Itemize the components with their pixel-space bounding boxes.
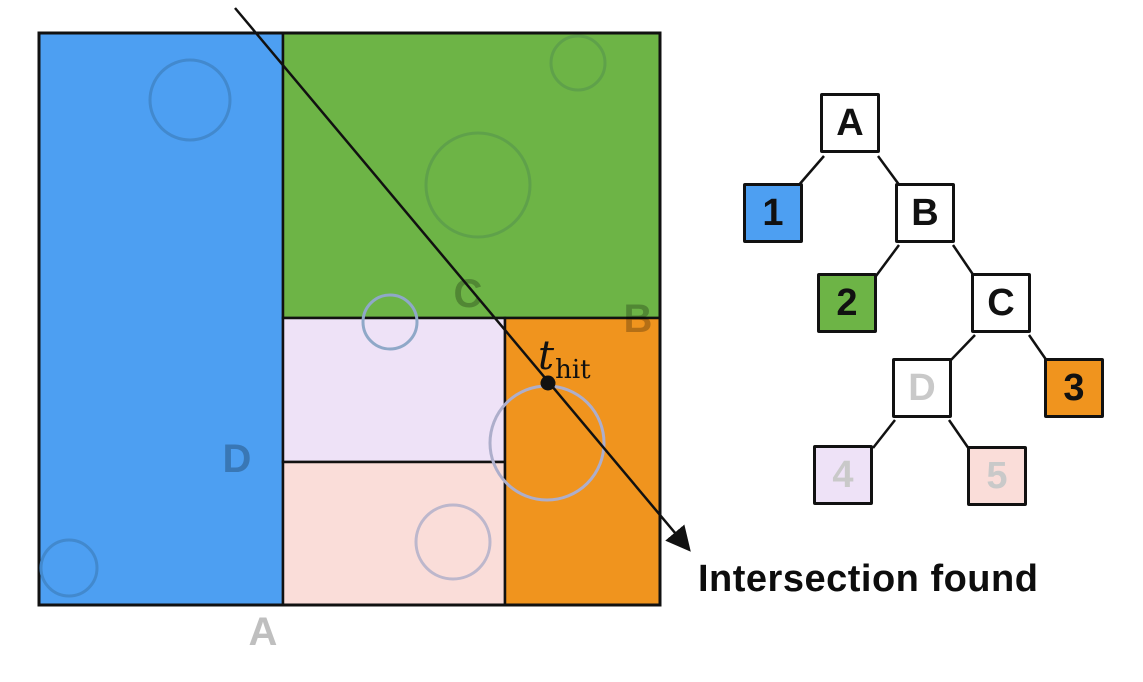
tree-node-D: D (892, 358, 952, 418)
region-label-c: C (454, 272, 483, 316)
edge-b-2 (876, 245, 899, 276)
t-hit-symbol: t (538, 333, 554, 379)
t-hit-subscript: hit (555, 355, 591, 385)
edge-b-c (953, 245, 974, 276)
region-label-b: B (624, 297, 653, 341)
edge-c-d (950, 335, 975, 361)
tree-node-2: 2 (817, 273, 877, 333)
tree-node-A: A (820, 93, 880, 153)
edge-d-4 (873, 420, 895, 448)
intersection-found-caption: Intersection found (698, 558, 1038, 601)
region-1-blue (39, 33, 283, 605)
tree-node-C: C (971, 273, 1031, 333)
tree-node-5: 5 (967, 446, 1027, 506)
region-label-d: D (223, 437, 252, 481)
edge-a-1 (798, 156, 824, 186)
edge-c-3 (1029, 335, 1047, 361)
tree-node-1: 1 (743, 183, 803, 243)
tree-node-3: 3 (1044, 358, 1104, 418)
edge-a-b (878, 156, 900, 186)
region-4-lavender (283, 318, 505, 462)
t-hit-label: thit (538, 336, 590, 376)
region-5-pink (283, 462, 505, 605)
edge-d-5 (949, 420, 969, 449)
tree-node-4: 4 (813, 445, 873, 505)
tree-node-B: B (895, 183, 955, 243)
region-label-a: A (249, 610, 278, 654)
bvh-traversal-figure: A B C D thit Intersection found A 1 B 2 … (0, 0, 1143, 682)
